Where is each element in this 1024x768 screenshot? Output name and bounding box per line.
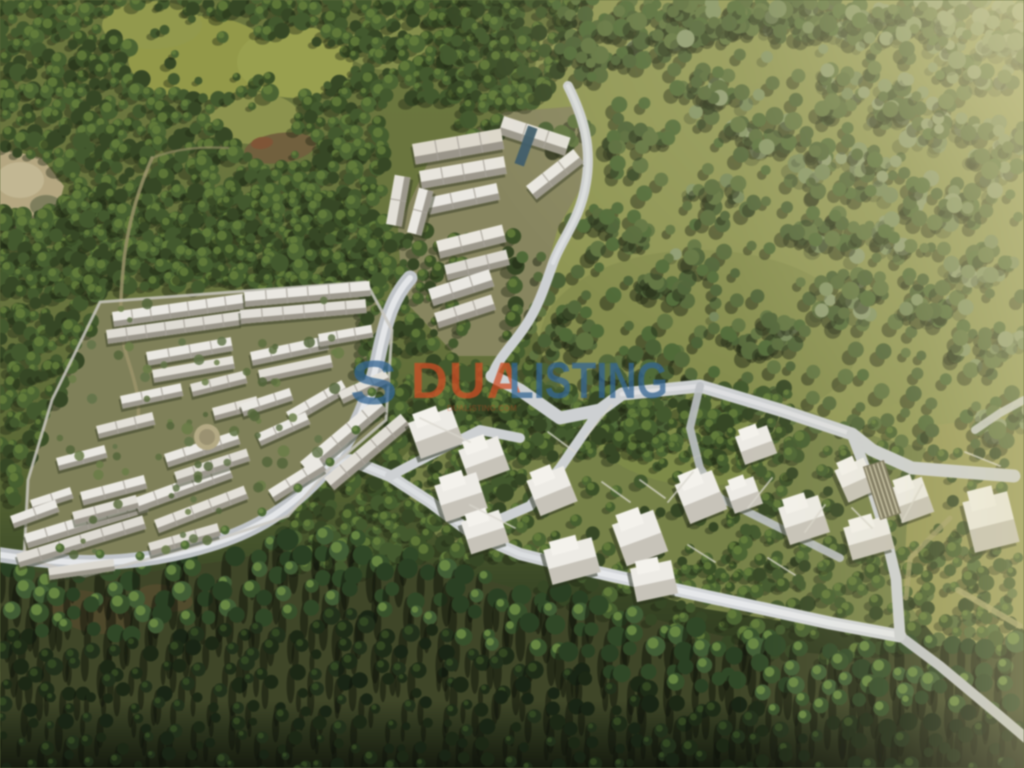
svg-text:LISTING: LISTING	[509, 351, 668, 409]
svg-text:S: S	[350, 348, 398, 417]
svg-text:DUA: DUA	[411, 352, 525, 409]
svg-text:DUALISTING.COM: DUALISTING.COM	[447, 404, 517, 413]
